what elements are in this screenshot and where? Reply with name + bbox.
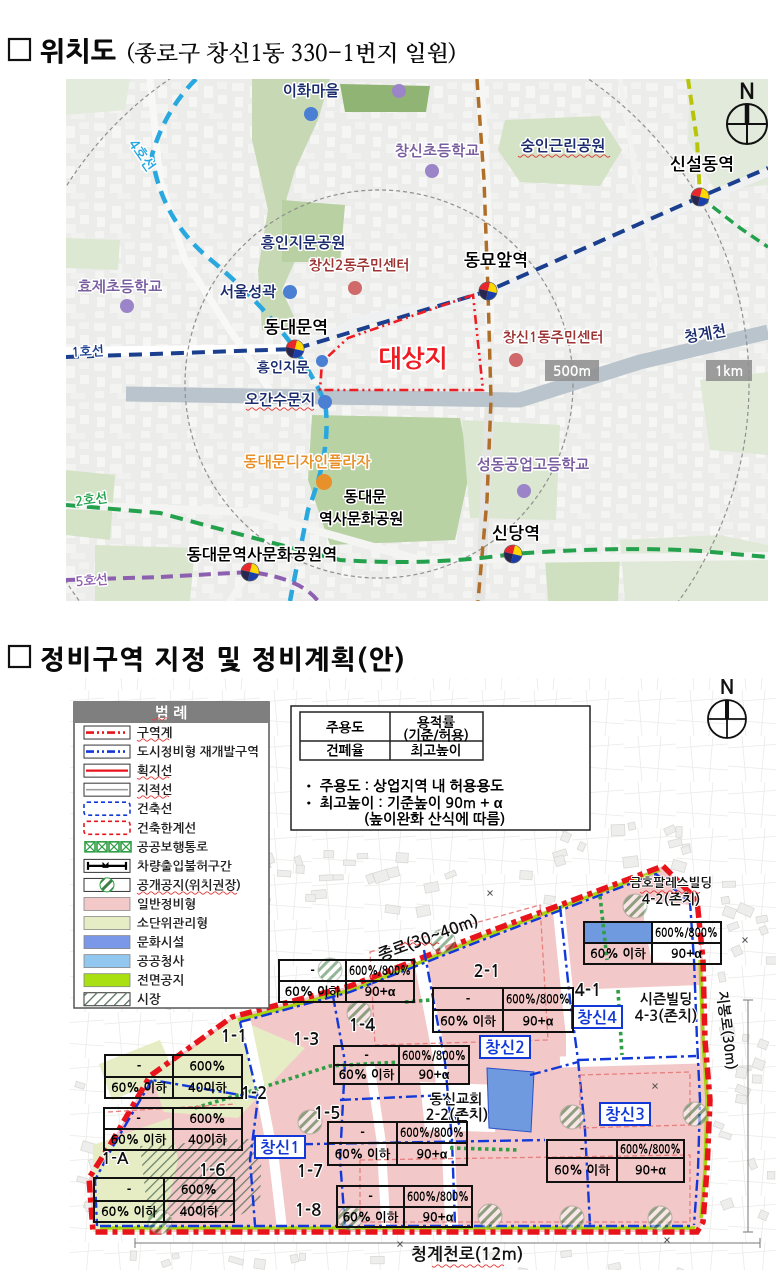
svg-text:60% 이하: 60% 이하 [339,1068,396,1081]
svg-text:600%: 600% [189,1060,225,1073]
svg-text:시즌빌딩: 시즌빌딩 [640,992,693,1007]
svg-text:동대문역: 동대문역 [264,318,328,336]
svg-text:주용도: 주용도 [326,721,364,735]
svg-text:×: × [487,888,494,899]
svg-text:창신4: 창신4 [577,1009,617,1026]
svg-text:역사문화공원: 역사문화공원 [319,511,404,527]
svg-text:60% 이하: 60% 이하 [554,1164,611,1177]
svg-text:-: - [360,1126,365,1139]
svg-text:600%/800%: 600%/800% [402,1049,466,1062]
svg-text:일반정비형: 일반정비형 [137,896,196,910]
svg-text:흥인지문공원: 흥인지문공원 [261,235,346,251]
svg-text:청계천로(12m): 청계천로(12m) [411,1245,523,1263]
svg-text:정비구역 지정 및 정비계획(안): 정비구역 지정 및 정비계획(안) [40,645,406,673]
svg-text:창신3: 창신3 [605,1106,645,1123]
svg-text:60% 이하: 60% 이하 [285,985,342,998]
svg-text:90+α: 90+α [416,1148,447,1161]
svg-text:1-7: 1-7 [297,1163,324,1180]
svg-text:이화마을: 이화마을 [283,83,339,99]
svg-text:공공보행통로: 공공보행통로 [137,840,208,853]
svg-text:90+α: 90+α [364,985,395,998]
svg-text:60% 이하: 60% 이하 [343,1211,400,1224]
svg-text:위치도: 위치도 [40,38,116,65]
svg-text:동대문디자인플라자: 동대문디자인플라자 [244,454,371,470]
svg-text:최고높이: 최고높이 [411,743,462,758]
svg-text:600%/800%: 600%/800% [655,926,718,939]
svg-text:전면공지: 전면공지 [137,973,184,987]
svg-text:지적선: 지적선 [137,782,173,796]
svg-text:N: N [720,677,735,697]
svg-text:-: - [368,1190,373,1203]
svg-text:600%/800%: 600%/800% [407,1190,469,1203]
svg-text:60% 이하: 60% 이하 [101,1205,158,1218]
svg-text:600%/800%: 600%/800% [349,964,411,977]
svg-text:창신1동주민센터: 창신1동주민센터 [503,330,604,345]
svg-text:2-2(존치): 2-2(존치) [426,1107,489,1123]
svg-text:90+α: 90+α [671,947,702,960]
svg-text:500m: 500m [553,365,591,379]
svg-text:60% 이하: 60% 이하 [590,947,647,960]
svg-text:공개공지(위치권장): 공개공지(위치권장) [137,877,241,891]
svg-text:금호팔레스빌딩: 금호팔레스빌딩 [630,876,712,889]
svg-text:서울성곽: 서울성곽 [220,284,276,300]
svg-text:2-1: 2-1 [474,963,501,980]
svg-text:동대문: 동대문 [344,489,386,505]
svg-text:60% 이하: 60% 이하 [440,1015,497,1028]
svg-text:창신초등학교: 창신초등학교 [395,143,480,159]
svg-text:-: - [136,1112,141,1125]
svg-text:문화시설: 문화시설 [137,935,185,949]
svg-text:×: × [664,1235,671,1246]
svg-text:-: - [580,1143,585,1156]
svg-text:획지선: 획지선 [137,764,173,777]
svg-text:600%/800%: 600%/800% [400,1126,464,1139]
svg-text:차량출입불허구간: 차량출입불허구간 [137,858,233,872]
svg-text:×: × [397,1239,404,1250]
svg-text:1-A: 1-A [101,1152,129,1167]
svg-text:1km: 1km [715,364,743,379]
svg-text:숭인근린공원: 숭인근린공원 [521,138,606,154]
svg-text:4-3(존치): 4-3(존치) [635,1008,698,1024]
svg-text:60% 이하: 60% 이하 [111,1133,168,1146]
svg-text:(기준/허용): (기준/허용) [403,728,469,743]
svg-text:600%/800%: 600%/800% [620,1143,681,1156]
svg-text:N: N [739,81,755,103]
svg-text:4-2(존치): 4-2(존치) [642,892,701,907]
svg-text:도시정비형 재개발구역: 도시정비형 재개발구역 [137,745,259,758]
svg-text:창신1: 창신1 [260,1139,300,1156]
svg-text:시장: 시장 [137,992,162,1006]
svg-text:흥인지문: 흥인지문 [257,360,310,375]
svg-text:신당역: 신당역 [492,524,540,542]
svg-text:1-4: 1-4 [349,1017,376,1034]
svg-text:60% 이하: 60% 이하 [111,1081,168,1094]
svg-text:오간수문지: 오간수문지 [245,392,316,408]
svg-text:1-2: 1-2 [241,1085,268,1102]
svg-text:-: - [364,1049,369,1062]
svg-text:40이하: 40이하 [188,1133,228,1146]
svg-text:1-8: 1-8 [295,1202,322,1219]
svg-text:40이하: 40이하 [188,1081,228,1094]
svg-text:구역계: 구역계 [137,726,173,739]
svg-text:창신2: 창신2 [485,1039,525,1056]
svg-text:1호선: 1호선 [71,344,104,359]
svg-text:600%: 600% [181,1183,217,1196]
svg-text:90+α: 90+α [635,1164,666,1177]
svg-text:효제초등학교: 효제초등학교 [78,279,163,295]
svg-text:(종로구 창신1동 330-1번지 일원): (종로구 창신1동 330-1번지 일원) [126,41,457,66]
svg-text:용적률: 용적률 [417,715,455,730]
svg-text:600%: 600% [189,1112,225,1125]
svg-text:-: - [137,1060,142,1073]
svg-text:창신2동주민센터: 창신2동주민센터 [309,258,410,273]
svg-text:4-1: 4-1 [575,982,602,999]
svg-text:40이하: 40이하 [180,1205,220,1218]
svg-text:1-3: 1-3 [293,1031,320,1048]
svg-text:90+α: 90+α [422,1211,453,1224]
svg-text:×: × [742,935,749,946]
svg-text:동묘앞역: 동묘앞역 [464,251,528,269]
svg-text:신설동역: 신설동역 [670,155,734,173]
svg-text:• 주용도 : 상업지역 내 허용용도: • 주용도 : 상업지역 내 허용용도 [302,778,504,794]
svg-text:-: - [466,993,471,1006]
svg-text:• 최고높이 : 기준높이 90m + α: • 최고높이 : 기준높이 90m + α [302,795,503,811]
svg-text:(높이완화 산식에 따름): (높이완화 산식에 따름) [364,811,505,827]
svg-text:건축선: 건축선 [137,802,173,815]
svg-text:1-5: 1-5 [314,1105,341,1122]
svg-text:60% 이하: 60% 이하 [335,1148,392,1161]
svg-text:공공청사: 공공청사 [137,955,186,968]
svg-text:소단위관리형: 소단위관리형 [137,917,208,930]
svg-text:건축한계선: 건축한계선 [137,821,196,834]
svg-text:1-6: 1-6 [199,1162,226,1179]
svg-text:성동공업고등학교: 성동공업고등학교 [477,457,590,473]
svg-text:90+α: 90+α [418,1068,449,1081]
svg-text:-: - [310,964,315,977]
svg-text:90+α: 90+α [522,1015,553,1028]
svg-text:1-1: 1-1 [221,1028,248,1045]
svg-text:동신교회: 동신교회 [430,1092,483,1107]
svg-text:-: - [127,1183,132,1196]
svg-text:동대문역사문화공원역: 동대문역사문화공원역 [187,546,337,563]
svg-text:건폐율: 건폐율 [326,742,364,758]
svg-text:×: × [652,1081,659,1092]
svg-text:대상지: 대상지 [378,345,447,371]
svg-text:600%/800%: 600%/800% [506,993,570,1006]
